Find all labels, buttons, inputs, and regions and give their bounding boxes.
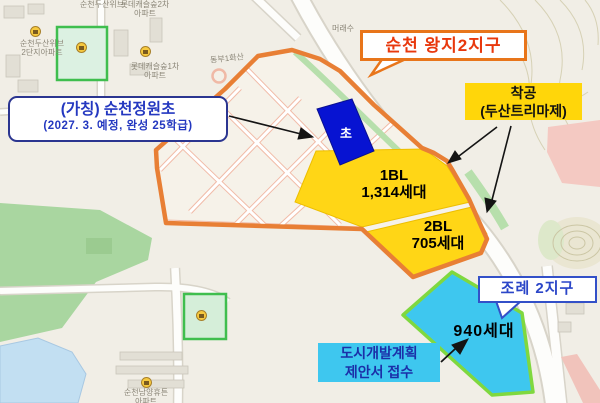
apt-label-dusan-weve2-l1: 순천두산위브 [2,39,82,48]
school-icon [196,310,207,321]
proposal-annotation: 도시개발계획 제안서 접수 [318,343,440,382]
apt-label-namyang-l1: 순천남양휴튼 [106,388,186,397]
apt-label-lotte2-l1: 롯데캐슬숲2차 [105,0,185,9]
bl1-name: 1BL [338,167,450,184]
school-icon [140,46,151,57]
apt-label-lotte-castle2: 롯데캐슬숲2차 아파트 [105,0,185,18]
apt-label-namyang: 순천남양휴튼 아파트 [106,388,186,403]
apt-label-lotte1-l2: 아파트 [115,71,195,80]
school-icon [30,26,41,37]
stream-label-maeraesu: 머래수 [326,24,360,33]
chakgong-annotation: 착공 (두산트리마제) [465,83,582,120]
wangji-district-callout: 순천 왕지2지구 [360,30,527,61]
map-figure: 순천 왕지2지구 착공 (두산트리마제) (가칭) 순천정원초 (2027. 3… [0,0,600,403]
school-icon [141,377,152,388]
apt-label-lotte1-l1: 롯데캐슬숲1차 [115,62,195,71]
households-940-label: 940세대 [444,317,524,341]
parcel-2bl-label: 2BL 705세대 [392,218,484,252]
bl2-households: 705세대 [392,235,484,252]
parcel-1bl-label: 1BL 1,314세대 [338,167,450,201]
proposal-line2: 제안서 접수 [318,363,440,382]
school-icon [76,42,87,53]
apt-label-dusan-weve2: 순천두산위브 2단지아파트 [2,39,82,57]
chakgong-line1: 착공 [465,84,582,102]
jorye-district-callout: 조례 2지구 [478,276,597,303]
proposal-line1: 도시개발계획 [318,344,440,363]
apt-label-dusan-weve2-l2: 2단지아파트 [2,48,82,57]
park-patch [86,238,112,254]
school-site-label: 초 [330,123,362,142]
apt-label-namyang-l2: 아파트 [106,397,186,403]
chakgong-line2: (두산트리마제) [465,102,582,120]
school-schedule: (2027. 3. 예정, 완성 25학급) [10,119,226,134]
apt-label-lotte-castle1: 롯데캐슬숲1차 아파트 [115,62,195,80]
school-callout: (가칭) 순천정원초 (2027. 3. 예정, 완성 25학급) [8,96,228,142]
school-name: (가칭) 순천정원초 [10,101,226,119]
bl2-name: 2BL [392,218,484,235]
apt-label-lotte2-l2: 아파트 [105,9,185,18]
bl1-households: 1,314세대 [338,184,450,201]
